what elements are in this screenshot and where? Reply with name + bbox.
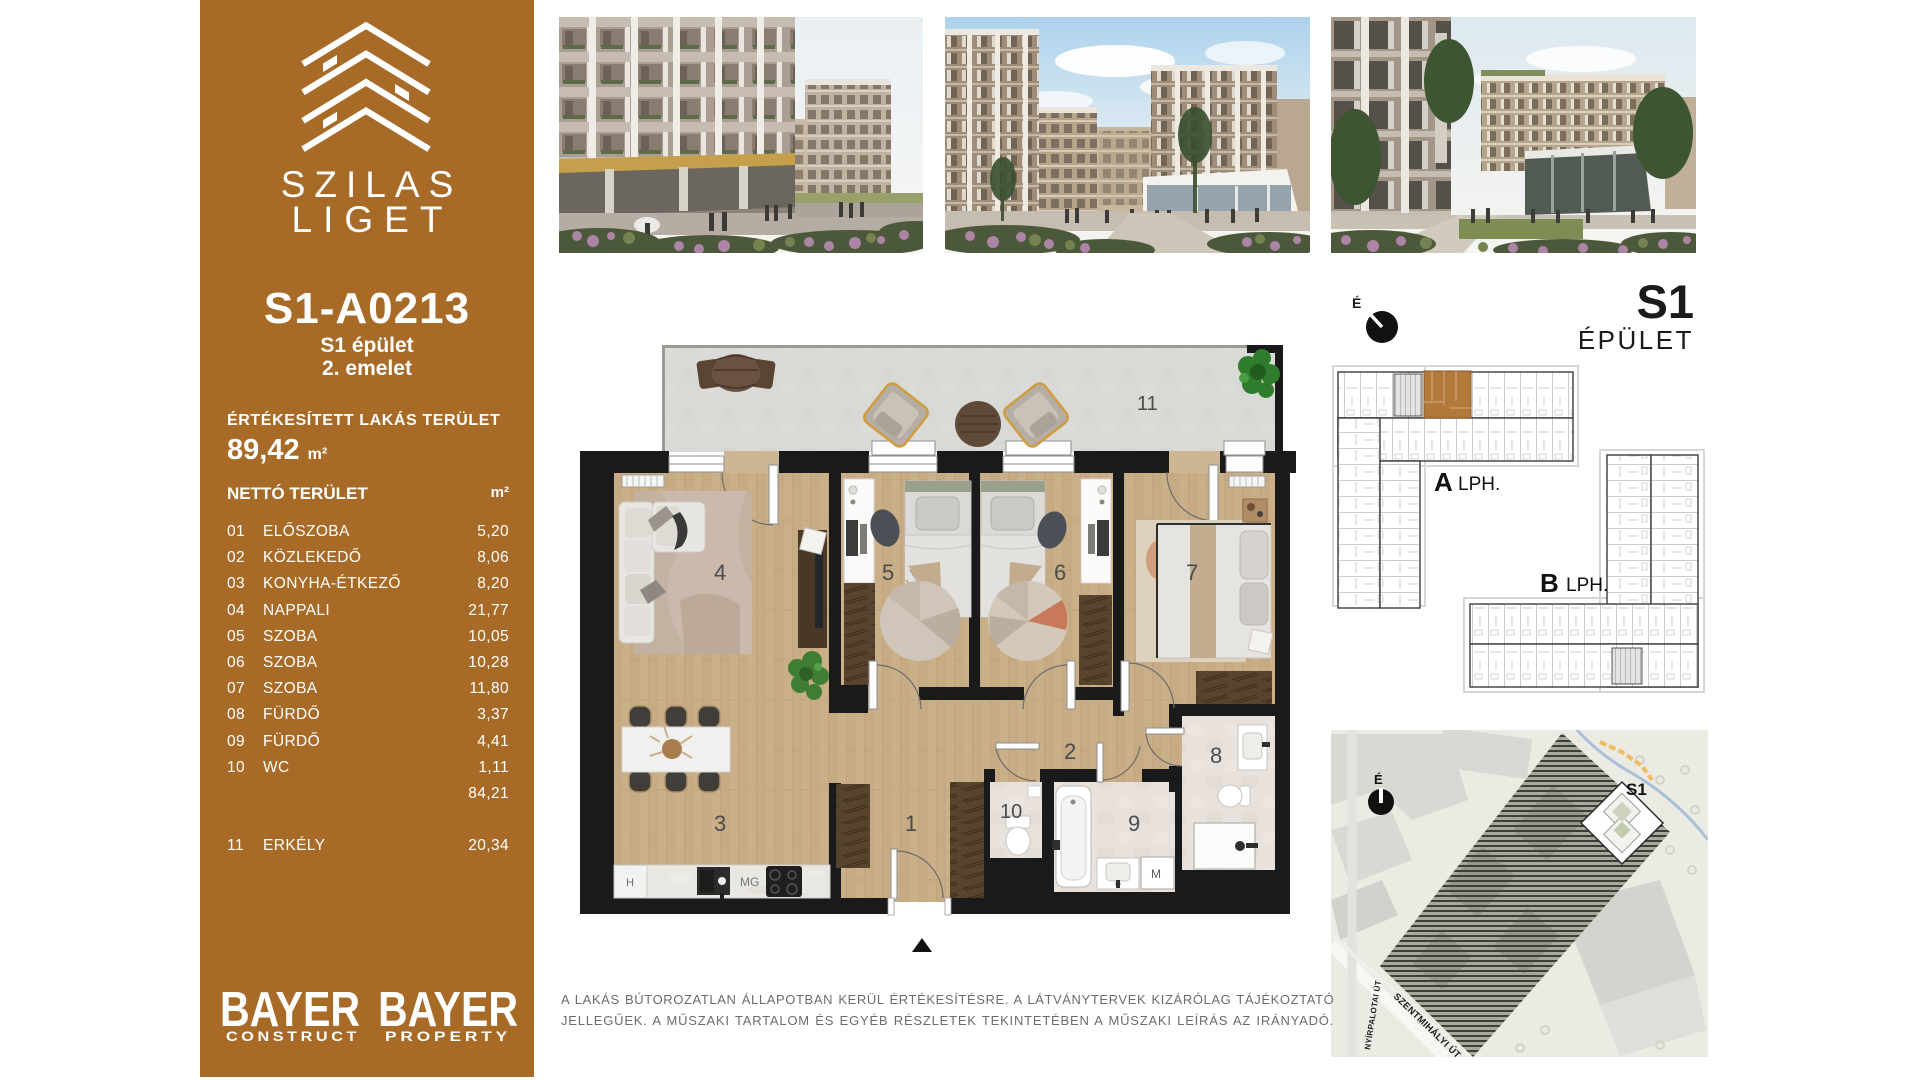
svg-text:H: H <box>626 877 634 889</box>
svg-text:B: B <box>1540 568 1559 598</box>
svg-text:1: 1 <box>905 811 917 836</box>
svg-text:5: 5 <box>882 560 894 585</box>
svg-text:8: 8 <box>1210 743 1222 768</box>
svg-text:LPH.: LPH. <box>1458 474 1500 495</box>
svg-text:M: M <box>1151 867 1161 881</box>
svg-text:7: 7 <box>1186 560 1198 585</box>
svg-text:4: 4 <box>714 560 726 585</box>
svg-text:10: 10 <box>1000 801 1022 823</box>
svg-text:É: É <box>1352 295 1361 311</box>
svg-text:PROPERTY: PROPERTY <box>385 1029 511 1044</box>
svg-text:2: 2 <box>1064 739 1076 764</box>
svg-text:S1: S1 <box>1626 780 1647 799</box>
svg-text:MG: MG <box>740 875 759 889</box>
svg-text:A: A <box>1434 467 1453 497</box>
svg-text:É: É <box>1374 772 1383 787</box>
svg-text:11: 11 <box>1137 393 1158 415</box>
svg-text:9: 9 <box>1128 811 1140 836</box>
svg-text:6: 6 <box>1054 560 1066 585</box>
svg-text:LPH.: LPH. <box>1566 575 1608 596</box>
svg-text:3: 3 <box>714 811 726 836</box>
svg-text:CONSTRUCT: CONSTRUCT <box>226 1029 360 1044</box>
